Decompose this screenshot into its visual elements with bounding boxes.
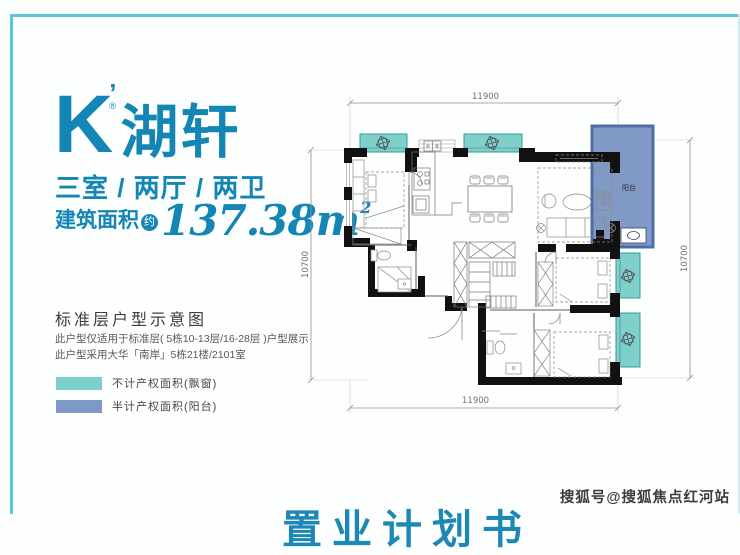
master-bedroom-furniture (353, 160, 404, 244)
balcony: 阳台 (592, 126, 653, 247)
legend-item-balcony: 半计产权面积(阳台) (56, 398, 217, 414)
dim-bottom: 11900 (462, 396, 489, 406)
balcony-label: 半计产权面积(阳台) (112, 398, 217, 414)
balcony-text: 阳台 (622, 183, 636, 192)
cutoff-promo-heading: 置业计划书 (282, 497, 532, 555)
bedroom2-furniture (538, 258, 610, 306)
kitchen-window (419, 140, 455, 152)
floor-plan: 11900 11900 10700 10700 阳台 (295, 80, 715, 420)
closet-area (454, 242, 516, 308)
brand-title: K’®湖轩 (54, 84, 240, 169)
frame-left-line (10, 14, 13, 514)
bathroom2-fixtures (487, 341, 521, 374)
brand-letter: K (54, 84, 113, 166)
bay-window-label: 不计产权面积(飘窗) (112, 375, 217, 391)
floor-plan-svg: 11900 11900 10700 10700 阳台 (295, 80, 715, 420)
note-line-1: 此户型仅适用于标准层( 5栋10-13层/16-28层 )户型展示 (55, 331, 309, 347)
dim-right: 10700 (680, 245, 690, 272)
bedroom3-furniture (534, 330, 610, 377)
watermark: 搜狐号@搜狐焦点红河站 (560, 486, 730, 507)
dim-left: 10700 (301, 251, 311, 278)
frame-top-line (10, 14, 740, 17)
washing-machine-icon (621, 228, 646, 243)
dim-top: 11900 (472, 92, 499, 102)
brand-name: 湖轩 (120, 85, 240, 169)
section-notes: 此户型仅适用于标准层( 5栋10-13层/16-28层 )户型展示 此户型采用大… (55, 331, 309, 364)
area-label: 建筑面积 (55, 209, 139, 232)
brand-apostrophe: ’ (109, 86, 116, 102)
section-title: 标准层户型示意图 (55, 306, 207, 330)
legend-item-bay-window: 不计产权面积(飘窗) (56, 375, 217, 391)
legend: 不计产权面积(飘窗) 半计产权面积(阳台) (56, 375, 217, 421)
area-value: 137.38 (161, 196, 316, 245)
dining-furniture (468, 176, 512, 222)
walls (344, 148, 622, 385)
entry-door-arc (428, 307, 462, 338)
approx-badge: 约 (141, 214, 158, 231)
note-line-2: 此户型采用大华「南岸」5栋21楼/2101室 (55, 347, 309, 363)
bay-window-swatch (56, 377, 102, 390)
balcony-swatch (56, 400, 102, 413)
bathroom1-fixtures (371, 250, 411, 292)
registered-mark: ® (109, 102, 116, 111)
